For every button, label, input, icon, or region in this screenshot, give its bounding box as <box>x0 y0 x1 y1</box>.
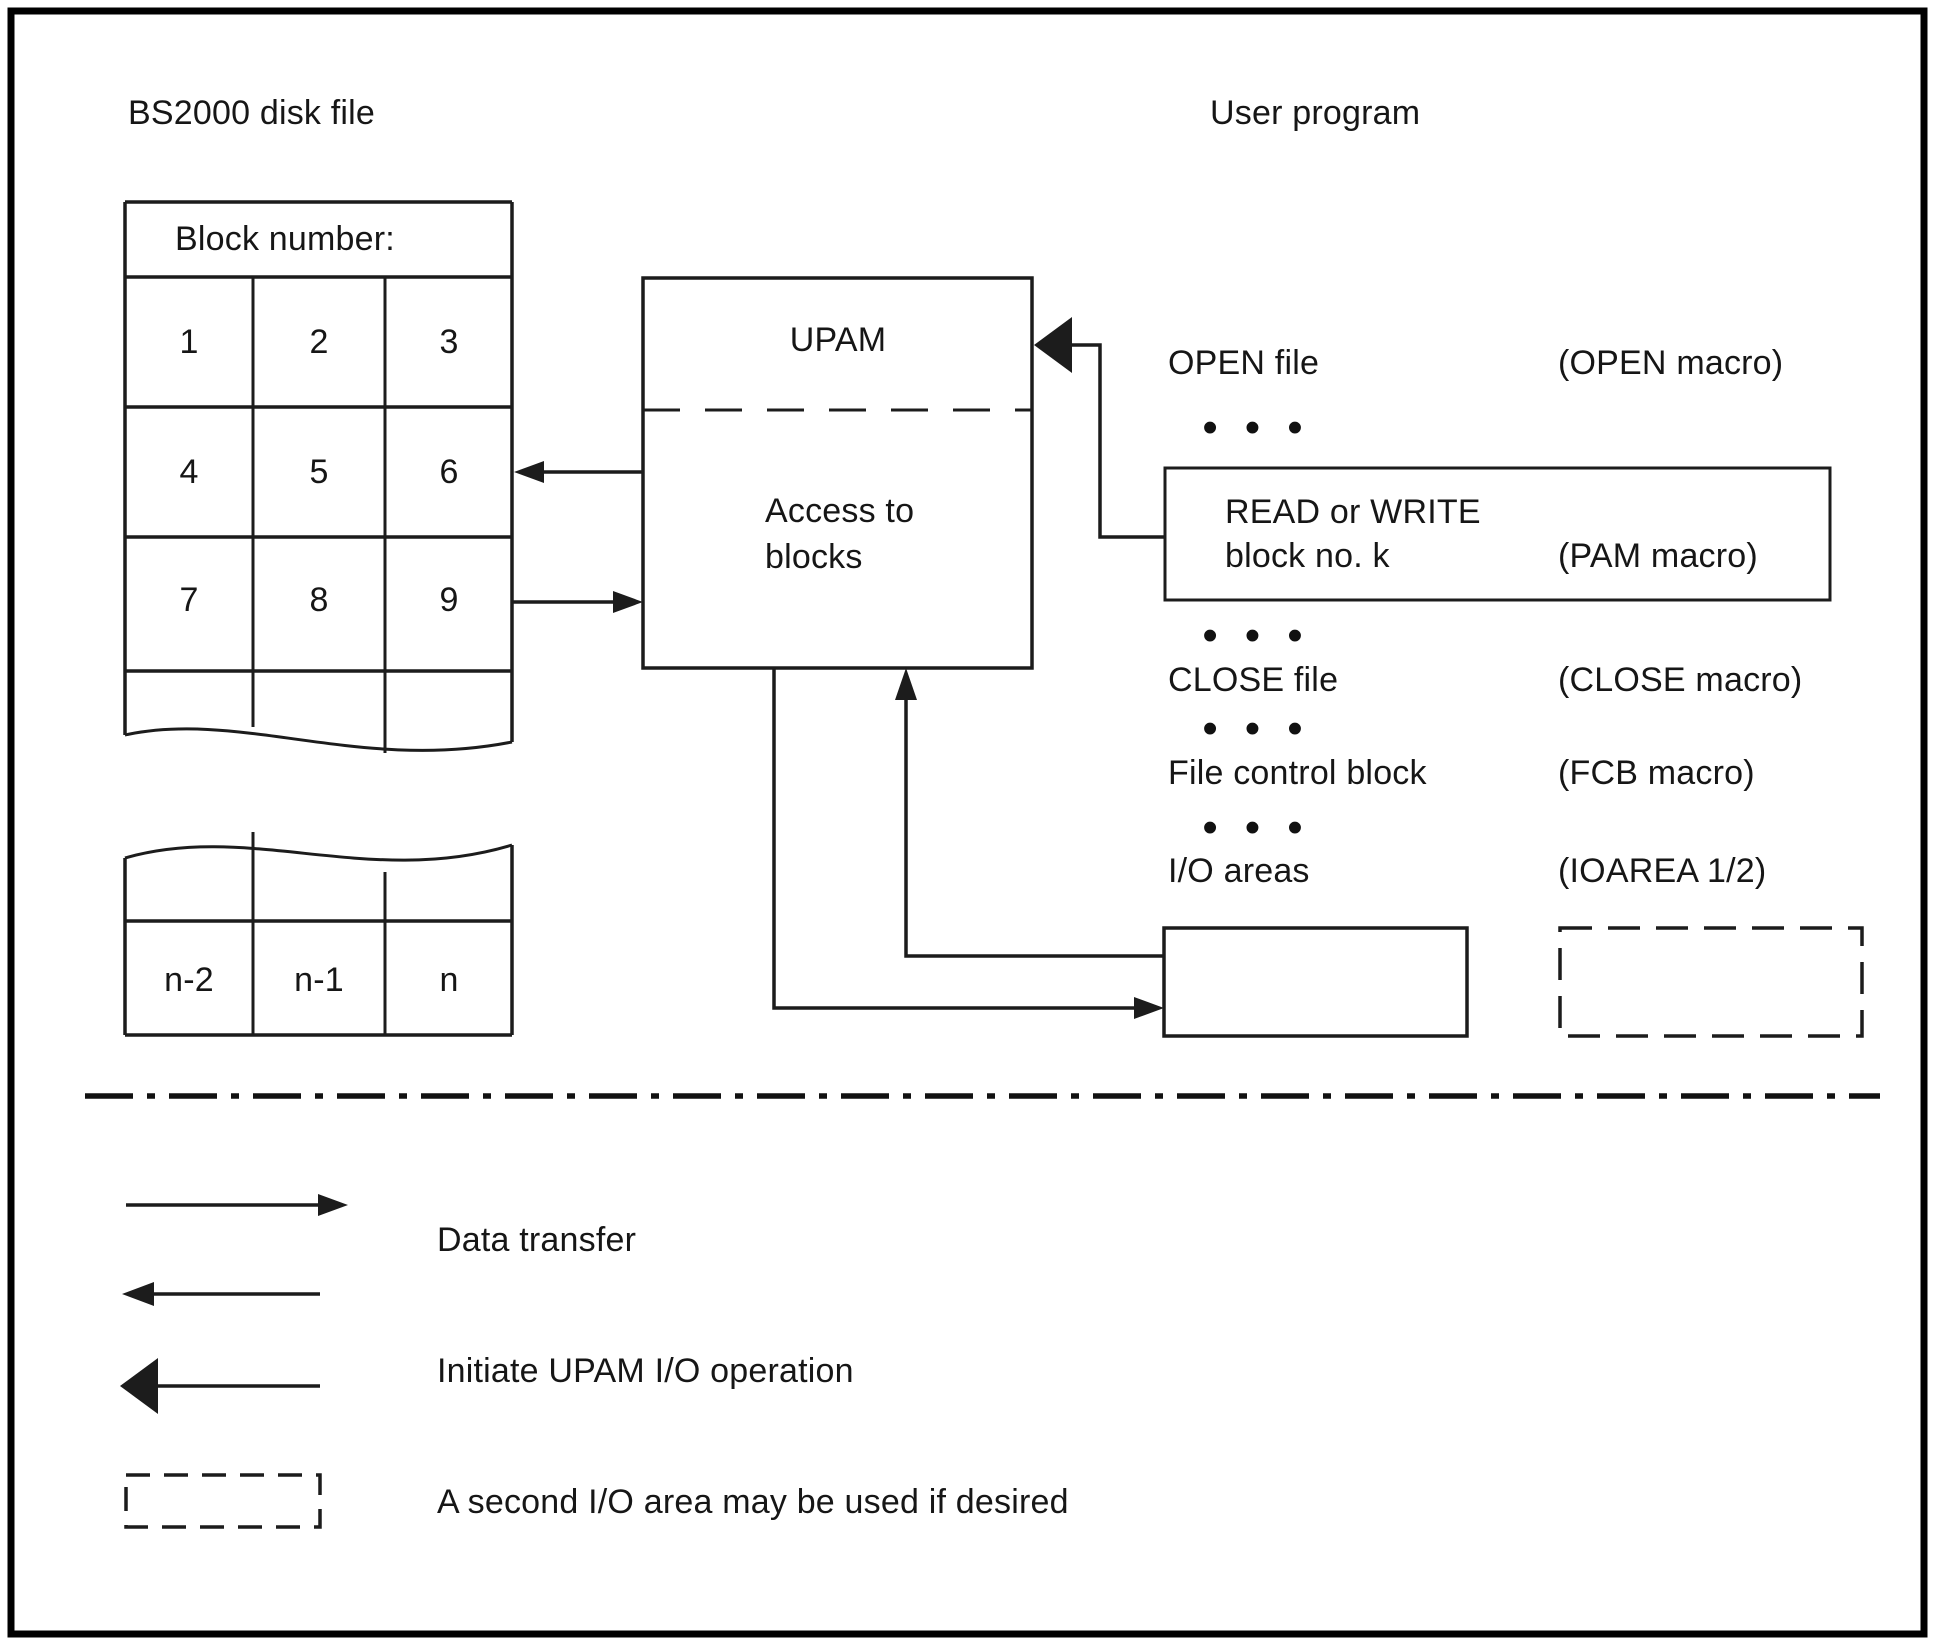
block-cell-n-1: n-1 <box>294 959 344 1001</box>
read-write-line1: READ or WRITE <box>1225 491 1481 533</box>
ellipsis-dots: ••• <box>1202 401 1329 455</box>
legend-arrow-initiate <box>120 1358 320 1414</box>
torn-edge-bottom <box>125 729 512 750</box>
fcb-macro-label: (FCB macro) <box>1558 752 1755 794</box>
arrowhead-right <box>613 591 643 613</box>
arrowhead-left-large <box>1034 317 1072 373</box>
block-cell-9: 9 <box>439 579 458 621</box>
block-cell-4: 4 <box>179 451 198 493</box>
pam-macro-label: (PAM macro) <box>1558 535 1758 577</box>
arrowhead-left <box>514 461 544 483</box>
arrow-initiate-upam-io <box>1034 317 1165 537</box>
disk-file-table-lower <box>125 832 512 1035</box>
open-file-label: OPEN file <box>1168 342 1319 384</box>
block-cell-6: 6 <box>439 451 458 493</box>
legend-initiate-label: Initiate UPAM I/O operation <box>437 1350 854 1392</box>
legend-data-transfer-label: Data transfer <box>437 1219 636 1261</box>
block-cell-5: 5 <box>309 451 328 493</box>
arrowhead-right <box>1134 997 1164 1019</box>
block-cell-7: 7 <box>179 579 198 621</box>
diagram-canvas: BS2000 disk file User program Block numb… <box>0 0 1935 1645</box>
block-cell-n-2: n-2 <box>164 959 214 1001</box>
torn-edge-top <box>125 845 512 860</box>
title-disk-file: BS2000 disk file <box>128 92 375 134</box>
read-write-line2: block no. k <box>1225 535 1390 577</box>
ellipsis-dots: ••• <box>1202 801 1329 855</box>
block-cell-2: 2 <box>309 321 328 363</box>
arrowhead-right <box>318 1194 348 1216</box>
upam-subtitle-line2: blocks <box>765 536 863 578</box>
title-user-program: User program <box>1210 92 1420 134</box>
read-write-box <box>1165 468 1830 600</box>
block-cell-3: 3 <box>439 321 458 363</box>
block-cell-8: 8 <box>309 579 328 621</box>
ioarea-macro-label: (IOAREA 1/2) <box>1558 850 1766 892</box>
arrow-upam-to-disk <box>514 461 643 483</box>
block-cell-1: 1 <box>179 321 198 363</box>
legend-dashed-box <box>126 1475 320 1527</box>
io-area-box <box>1164 928 1467 1036</box>
io-area-second-box-dashed <box>1560 928 1862 1036</box>
arrowhead-left <box>122 1282 154 1306</box>
open-macro-label: (OPEN macro) <box>1558 342 1783 384</box>
arrowhead-left-large <box>120 1358 158 1414</box>
close-macro-label: (CLOSE macro) <box>1558 659 1802 701</box>
close-file-label: CLOSE file <box>1168 659 1338 701</box>
file-control-block-label: File control block <box>1168 752 1427 794</box>
legend-arrow-left <box>122 1282 320 1306</box>
arrow-ioarea-to-upam <box>895 668 1164 956</box>
arrow-upam-to-ioarea <box>774 668 1164 1019</box>
block-cell-n: n <box>439 959 458 1001</box>
ellipsis-dots: ••• <box>1202 609 1329 663</box>
io-areas-label: I/O areas <box>1168 850 1310 892</box>
ellipsis-dots: ••• <box>1202 702 1329 756</box>
legend-second-io-label: A second I/O area may be used if desired <box>437 1481 1069 1523</box>
arrowhead-up <box>895 668 917 700</box>
arrow-disk-to-upam <box>512 591 643 613</box>
upam-subtitle-line1: Access to <box>765 490 914 532</box>
upam-title: UPAM <box>790 319 887 361</box>
table-header-block-number: Block number: <box>175 218 395 260</box>
legend-arrow-right <box>126 1194 348 1216</box>
